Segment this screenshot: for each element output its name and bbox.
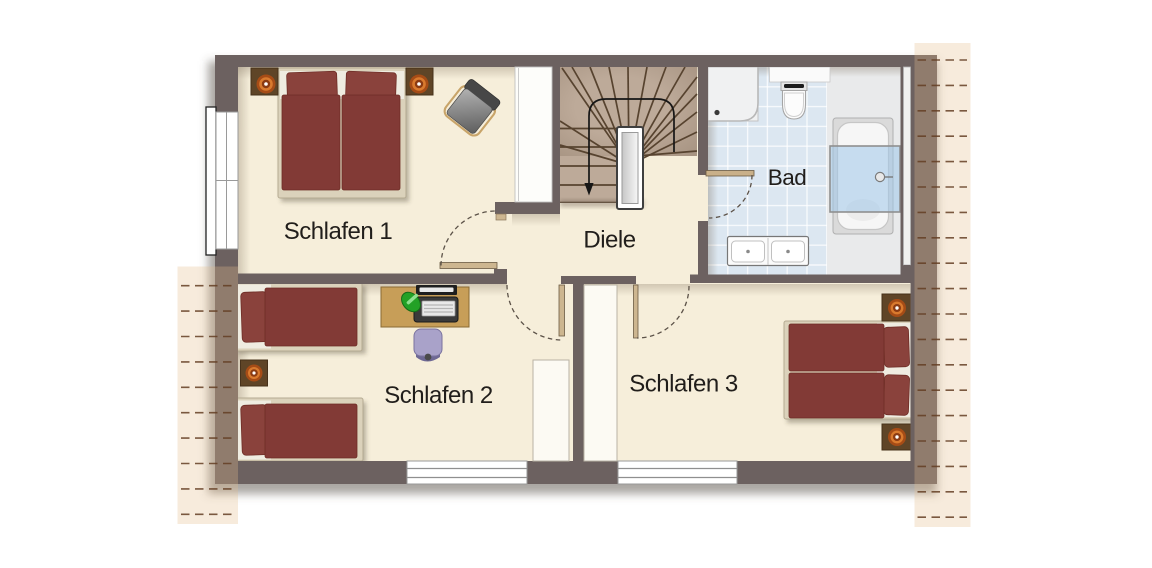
svg-text:Diele: Diele (583, 227, 635, 254)
svg-text:Schlafen 2: Schlafen 2 (384, 382, 493, 409)
svg-text:Bad: Bad (768, 165, 807, 190)
svg-text:Schlafen 1: Schlafen 1 (284, 218, 393, 245)
svg-text:Schlafen 3: Schlafen 3 (629, 371, 738, 398)
